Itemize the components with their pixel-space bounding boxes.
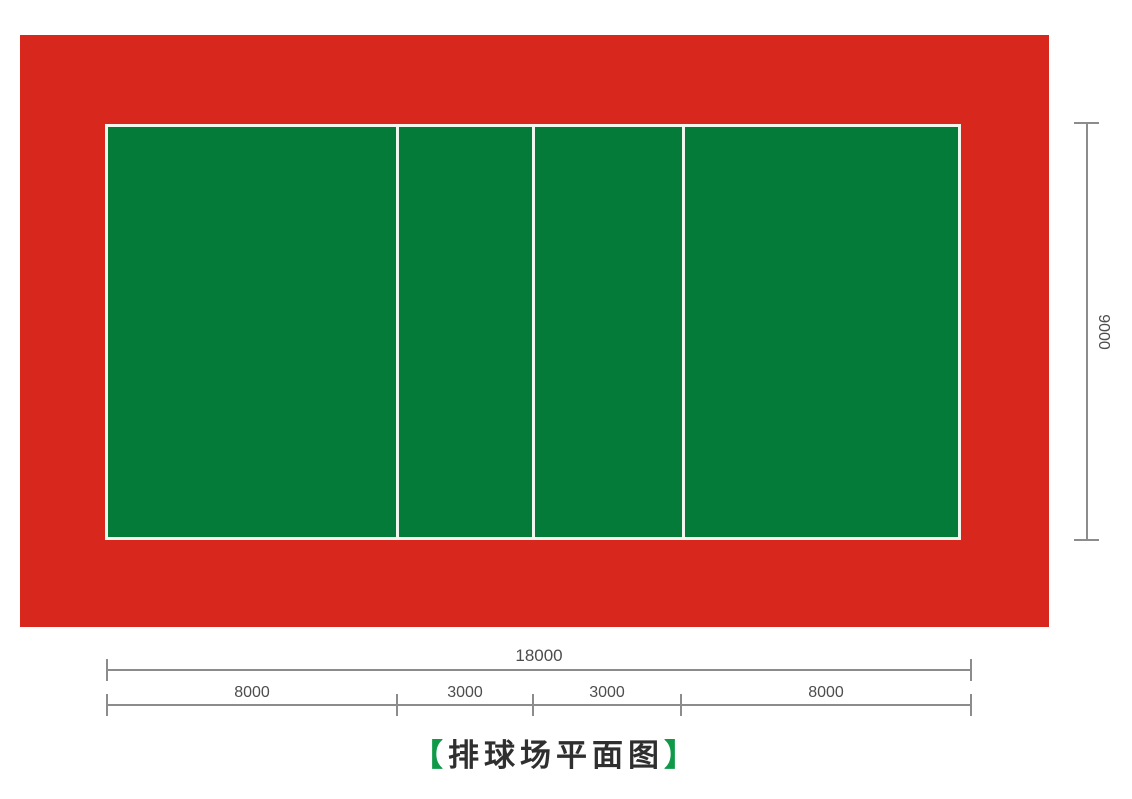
total-length-dimension-label: 18000 bbox=[107, 646, 971, 666]
volleyball-court-diagram: 9000 18000 8000 3000 3000 8000 【排球场平面图】 bbox=[0, 0, 1132, 799]
page-title: 【排球场平面图】 bbox=[86, 735, 1026, 777]
segment-dimension-label: 8000 bbox=[681, 683, 971, 703]
court-surface bbox=[105, 124, 961, 540]
title-bracket-open: 【 bbox=[412, 738, 448, 773]
attack-line-right bbox=[682, 127, 685, 537]
total-length-dimension-line bbox=[107, 669, 971, 671]
court-apron bbox=[20, 35, 1049, 627]
vertical-dimension-cap-bottom bbox=[1074, 539, 1099, 541]
segment-dimension-label: 3000 bbox=[533, 683, 681, 703]
title-text: 排球场平面图 bbox=[448, 738, 664, 773]
segment-dimension-line bbox=[107, 704, 971, 706]
vertical-dimension-line bbox=[1086, 123, 1088, 540]
attack-line-left bbox=[396, 127, 399, 537]
vertical-dimension-cap-top bbox=[1074, 122, 1099, 124]
segment-dimension-label: 8000 bbox=[107, 683, 397, 703]
vertical-dimension-label: 9000 bbox=[1093, 309, 1113, 355]
center-line bbox=[532, 127, 535, 537]
title-bracket-close: 】 bbox=[664, 738, 700, 773]
segment-dimension-label: 3000 bbox=[397, 683, 533, 703]
